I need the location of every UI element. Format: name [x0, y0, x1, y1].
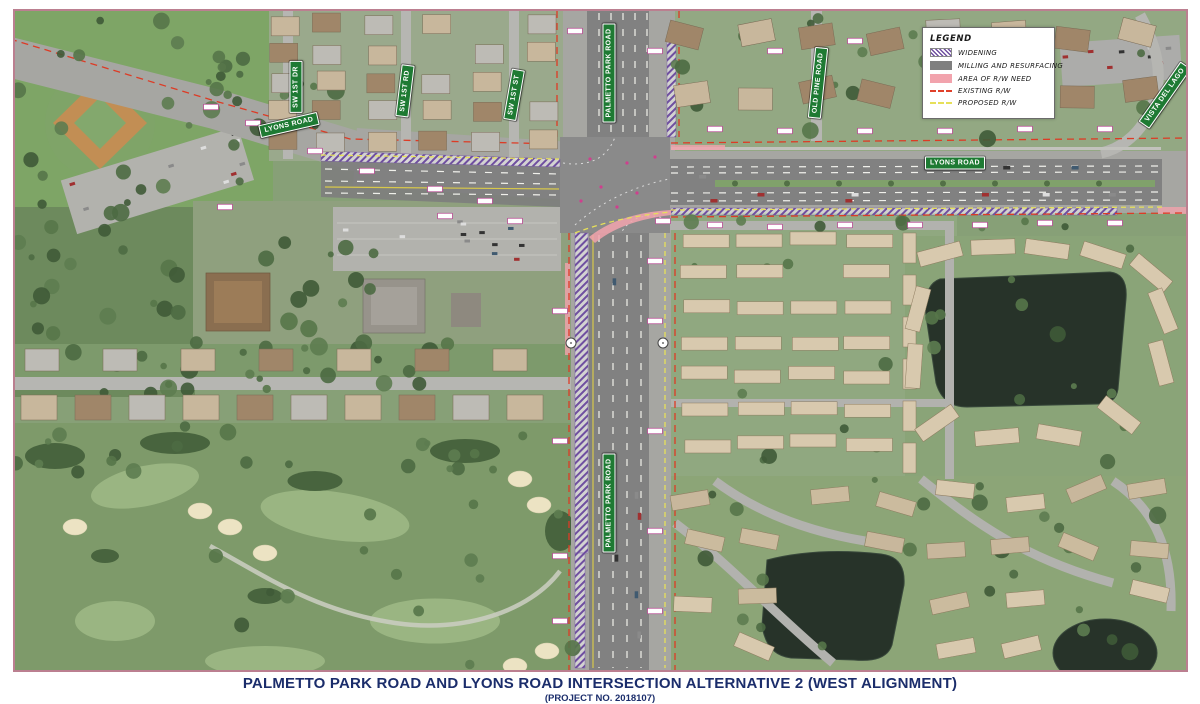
sheet-subtitle: (PROJECT NO. 2018107): [0, 693, 1200, 704]
street-sign-sw-1st-dr: SW 1ST DR: [290, 61, 303, 113]
legend-label: EXISTING R/W: [958, 87, 1011, 95]
legend-row-proposed-rw: PROPOSED R/W: [930, 99, 1047, 107]
street-sign-palmetto-park-road-north: PALMETTO PARK ROAD: [603, 24, 616, 123]
legend-title: LEGEND: [930, 34, 1047, 44]
legend: LEGEND WIDENING MILLING AND RESURFACING …: [922, 27, 1055, 119]
legend-row-milling: MILLING AND RESURFACING: [930, 61, 1047, 70]
existing-rw-swatch: [930, 90, 952, 92]
legend-label: MILLING AND RESURFACING: [958, 62, 1063, 70]
proposed-rw-swatch: [930, 102, 952, 104]
legend-row-existing-rw: EXISTING R/W: [930, 87, 1047, 95]
widening-swatch: [930, 48, 952, 57]
rw-need-swatch: [930, 74, 952, 83]
sheet-title: PALMETTO PARK ROAD AND LYONS ROAD INTERS…: [0, 675, 1200, 692]
street-sign-palmetto-park-road-south: PALMETTO PARK ROAD: [603, 454, 616, 553]
legend-label: WIDENING: [958, 49, 997, 57]
plan-sheet: LYONS ROAD SW 1ST DR SW 1ST RD SW 1ST ST…: [0, 0, 1200, 704]
legend-row-widening: WIDENING: [930, 48, 1047, 57]
milling-swatch: [930, 61, 952, 70]
map-frame: LYONS ROAD SW 1ST DR SW 1ST RD SW 1ST ST…: [13, 9, 1188, 672]
title-block: PALMETTO PARK ROAD AND LYONS ROAD INTERS…: [0, 675, 1200, 704]
legend-row-rw-need: AREA OF R/W NEED: [930, 74, 1047, 83]
legend-label: PROPOSED R/W: [958, 99, 1017, 107]
street-sign-lyons-road-east: LYONS ROAD: [925, 157, 985, 170]
legend-label: AREA OF R/W NEED: [958, 75, 1032, 83]
